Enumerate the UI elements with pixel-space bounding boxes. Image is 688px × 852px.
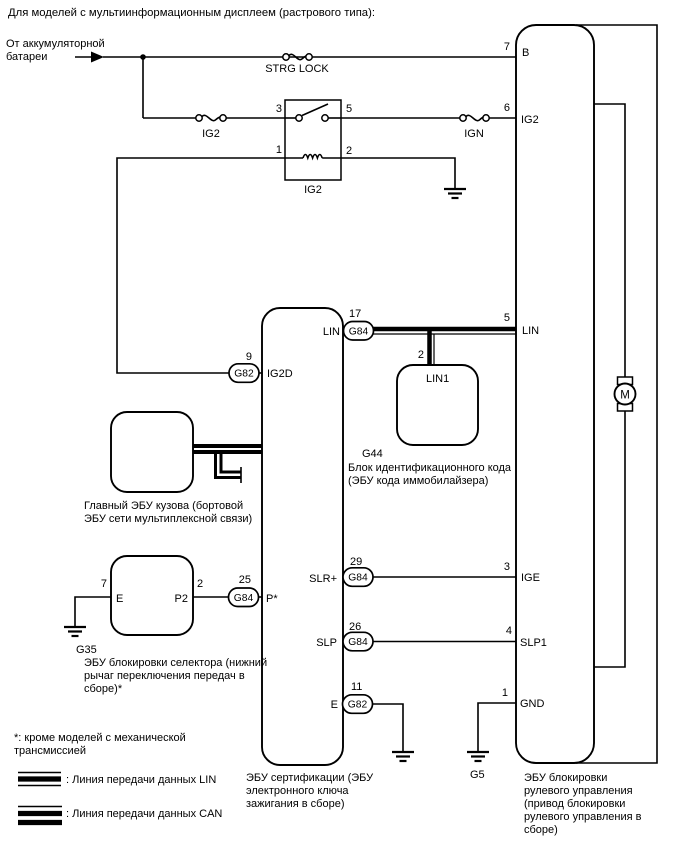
fuse-terminal bbox=[196, 115, 202, 121]
connector-code: G84 bbox=[349, 326, 369, 337]
lin-line bbox=[373, 329, 516, 365]
pin-num-2-sel: 2 bbox=[197, 578, 203, 590]
id-code-ecu-label2: (ЭБУ кода иммобилайзера) bbox=[348, 475, 488, 487]
steering-ecu-label1: ЭБУ блокировки bbox=[524, 772, 607, 784]
connector-code: G84 bbox=[348, 637, 368, 648]
pin-name-ige: IGE bbox=[521, 572, 540, 584]
fuse-element bbox=[466, 115, 484, 120]
selector-ecu-label1: ЭБУ блокировки селектора (нижний bbox=[84, 657, 267, 669]
can-line bbox=[193, 446, 262, 483]
pin-name-slp: SLP bbox=[316, 637, 337, 649]
cert-ecu-label1: ЭБУ сертификации (ЭБУ bbox=[246, 772, 374, 784]
wire-sel-e-to-g35 bbox=[75, 597, 111, 627]
footnote-line1: *: кроме моделей с механической bbox=[14, 732, 186, 744]
ground-g5 bbox=[467, 752, 489, 761]
wire-coil-to-ground bbox=[341, 158, 455, 189]
fuse-strg-lock-label: STRG LOCK bbox=[265, 63, 329, 75]
pin-num-11: 11 bbox=[351, 681, 362, 693]
pin-name-gnd: GND bbox=[520, 698, 545, 710]
legend-can-symbol bbox=[18, 807, 62, 823]
pin-num-2-lin1: 2 bbox=[418, 349, 424, 361]
pin-name-slp1: SLP1 bbox=[520, 637, 547, 649]
motor-wire-bottom bbox=[594, 410, 625, 667]
pin-num-25: 25 bbox=[239, 574, 251, 586]
legend-lin-symbol bbox=[18, 773, 61, 786]
fuse-terminal bbox=[460, 115, 466, 121]
pin-num-ige: 3 bbox=[504, 561, 510, 573]
fuse-ign bbox=[460, 115, 489, 121]
ground-relay bbox=[444, 189, 466, 198]
ground-g5-label: G5 bbox=[470, 769, 485, 781]
fuse-ign-label: IGN bbox=[464, 128, 484, 140]
pin-num-gnd: 1 bbox=[502, 687, 508, 699]
arrow-icon bbox=[91, 52, 104, 63]
body-ecu-box bbox=[111, 412, 193, 492]
fuse-element bbox=[202, 115, 220, 120]
body-ecu-label2: ЭБУ сети мультиплексной связи) bbox=[84, 513, 252, 525]
relay-pin-2: 2 bbox=[346, 145, 352, 157]
legend-can-label: : Линия передачи данных CAN bbox=[66, 808, 222, 820]
pin-name-ig2: IG2 bbox=[521, 114, 539, 126]
pin-name-lin-right: LIN bbox=[522, 325, 539, 337]
body-ecu-label1: Главный ЭБУ кузова (бортовой bbox=[84, 500, 243, 512]
page-title: Для моделей с мультиинформационным диспл… bbox=[8, 7, 375, 19]
steering-ecu-label5: сборе) bbox=[524, 824, 558, 836]
footnote-line2: трансмиссией bbox=[14, 745, 86, 757]
ground-g35 bbox=[64, 627, 86, 636]
pin-num-ig2: 6 bbox=[504, 102, 510, 114]
pin-name-ig2d: IG2D bbox=[267, 368, 293, 380]
battery-source-line1: От аккумуляторной bbox=[6, 38, 105, 50]
relay-pin-3: 3 bbox=[276, 103, 282, 115]
ig2-relay bbox=[285, 100, 341, 180]
ground-cert-e bbox=[392, 752, 414, 761]
steering-ecu-label4: рулевого управления в bbox=[524, 811, 642, 823]
pin-name-lin1: LIN1 bbox=[426, 373, 449, 385]
pin-num-b: 7 bbox=[504, 41, 510, 53]
steering-ecu-label2: рулевого управления bbox=[524, 785, 633, 797]
connector-code: G82 bbox=[348, 700, 368, 711]
fuse-ig2-label: IG2 bbox=[202, 128, 220, 140]
pin-num-7-sel: 7 bbox=[101, 578, 107, 590]
pin-name-e: E bbox=[331, 699, 338, 711]
relay-box bbox=[285, 100, 341, 180]
pin-name-p: P* bbox=[266, 593, 278, 605]
pin-num-26: 26 bbox=[349, 621, 361, 633]
legend-lin-label: : Линия передачи данных LIN bbox=[66, 774, 216, 786]
selector-ecu-label2: рычаг переключения передач в bbox=[84, 670, 245, 682]
pin-name-slr: SLR+ bbox=[309, 573, 337, 585]
wire-coil-to-ig2d bbox=[117, 158, 285, 373]
motor-label: M bbox=[620, 390, 630, 402]
relay-contact-left bbox=[296, 115, 302, 121]
relay-name: IG2 bbox=[304, 184, 322, 196]
connector-code: G84 bbox=[234, 593, 254, 604]
pin-num-lin-right: 5 bbox=[504, 312, 510, 324]
id-code-ecu-label1: Блок идентификационного кода bbox=[348, 462, 512, 474]
can-stub-inner bbox=[221, 451, 241, 472]
fuse-terminal bbox=[306, 54, 312, 60]
pin-num-29: 29 bbox=[350, 556, 362, 568]
selector-ecu-label3: сборе)* bbox=[84, 683, 123, 695]
wiring-diagram: M G82 bbox=[0, 0, 688, 852]
pin-num-9: 9 bbox=[246, 351, 252, 363]
relay-pin-5: 5 bbox=[346, 103, 352, 115]
relay-pin-1: 1 bbox=[276, 144, 282, 156]
fuse-terminal bbox=[220, 115, 226, 121]
lock-motor-circuit: M bbox=[594, 104, 636, 667]
wire-gnd-to-g5 bbox=[478, 703, 516, 752]
id-code-ecu-code: G44 bbox=[362, 448, 383, 460]
pin-num-17: 17 bbox=[349, 308, 361, 320]
pin-name-lin: LIN bbox=[323, 326, 340, 338]
cert-ecu-label3: зажигания в сборе) bbox=[246, 798, 345, 810]
fuse-ig2 bbox=[196, 115, 226, 121]
fuse-terminal bbox=[283, 54, 289, 60]
pin-name-p2: P2 bbox=[175, 593, 188, 605]
pin-name-b: B bbox=[522, 47, 529, 59]
motor-wire-top bbox=[594, 104, 625, 378]
wire-e-to-ground bbox=[372, 704, 403, 752]
relay-contact-right bbox=[322, 115, 328, 121]
battery-source-line2: батареи bbox=[6, 51, 47, 63]
steering-ecu-label3: (привод блокировки bbox=[524, 798, 625, 810]
cert-ecu-label2: электронного ключа bbox=[246, 785, 349, 797]
ground-g35-label: G35 bbox=[76, 644, 97, 656]
connector-code: G82 bbox=[234, 369, 254, 380]
steering-lock-ecu-box bbox=[516, 25, 594, 763]
pin-name-e-sel: E bbox=[116, 593, 123, 605]
fuse-terminal bbox=[483, 115, 489, 121]
diagram-canvas: M G82 bbox=[0, 0, 688, 852]
pin-num-slp1: 4 bbox=[506, 625, 512, 637]
connector-code: G84 bbox=[348, 573, 368, 584]
can-stub-outer bbox=[216, 451, 242, 478]
